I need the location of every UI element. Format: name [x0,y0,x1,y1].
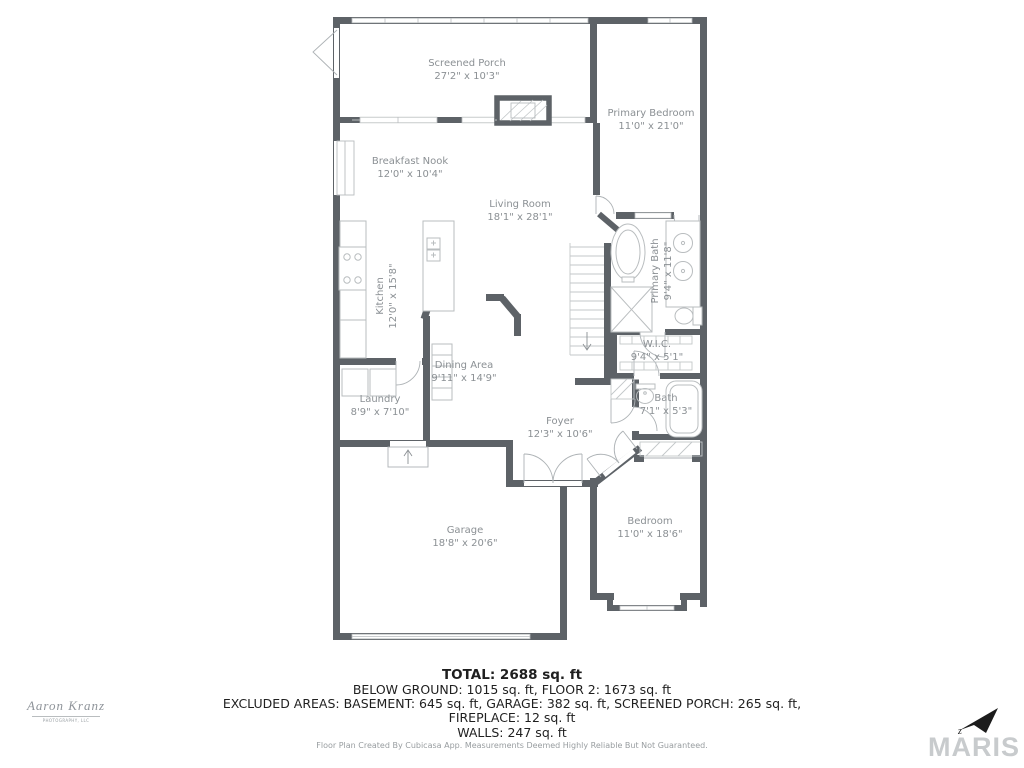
room-label-breakfast-nook: Breakfast Nook 12'0" x 10'4" [372,155,448,181]
toilet [693,307,702,325]
room-label-wic: W.I.C. 9'4" x 5'1" [631,338,683,364]
room-label-laundry: Laundry 8'9" x 7'10" [351,393,410,419]
room-label-living-room: Living Room 18'1" x 28'1" [487,198,552,224]
photographer-logo: Aaron Kranz PHOTOGRAPHY, LLC [26,698,106,723]
excluded-areas: EXCLUDED AREAS: BASEMENT: 645 sq. ft, GA… [0,698,1024,711]
maris-logo: z MARIS [926,706,1024,768]
below-ground-area: BELOW GROUND: 1015 sq. ft, FLOOR 2: 1673… [0,684,1024,697]
room-label-primary-bedroom: Primary Bedroom 11'0" x 21'0" [607,107,694,133]
kitchen-island [423,221,454,311]
room-label-primary-bath: Primary Bath 9'4" x 11'8" [649,238,675,303]
room-label-bath: Bath 7'1" x 5'3" [640,392,692,418]
floorplan-page: Screened Porch 27'2" x 10'3" Primary Bed… [0,0,1024,768]
bedroom-closet [640,442,702,456]
logo-divider [32,716,100,717]
fireplace-area: FIREPLACE: 12 sq. ft [0,712,1024,725]
room-label-foyer: Foyer 12'3" x 10'6" [527,415,592,441]
disclaimer-text: Floor Plan Created By Cubicasa App. Meas… [0,741,1024,750]
staircase [570,243,604,355]
fireplace [497,98,549,123]
photographer-subtitle: PHOTOGRAPHY, LLC [26,718,106,723]
foyer-closet [611,379,634,399]
washer-dryer [342,369,396,396]
room-label-garage: Garage 18'8" x 20'6" [432,524,497,550]
area-summary: TOTAL: 2688 sq. ft BELOW GROUND: 1015 sq… [0,669,1024,741]
maris-watermark: MARIS [928,732,1020,763]
room-label-dining-area: Dining Area 9'11" x 14'9" [431,359,496,385]
walls-area: WALLS: 247 sq. ft [0,727,1024,740]
room-label-kitchen: Kitchen 12'0" x 15'8" [374,263,400,328]
stove [339,247,366,290]
photographer-name: Aaron Kranz [26,698,106,714]
room-label-bedroom: Bedroom 11'0" x 18'6" [617,515,682,541]
floorplan-drawing [0,0,1024,768]
total-area: TOTAL: 2688 sq. ft [0,669,1024,683]
room-label-screened-porch: Screened Porch 27'2" x 10'3" [428,57,506,83]
